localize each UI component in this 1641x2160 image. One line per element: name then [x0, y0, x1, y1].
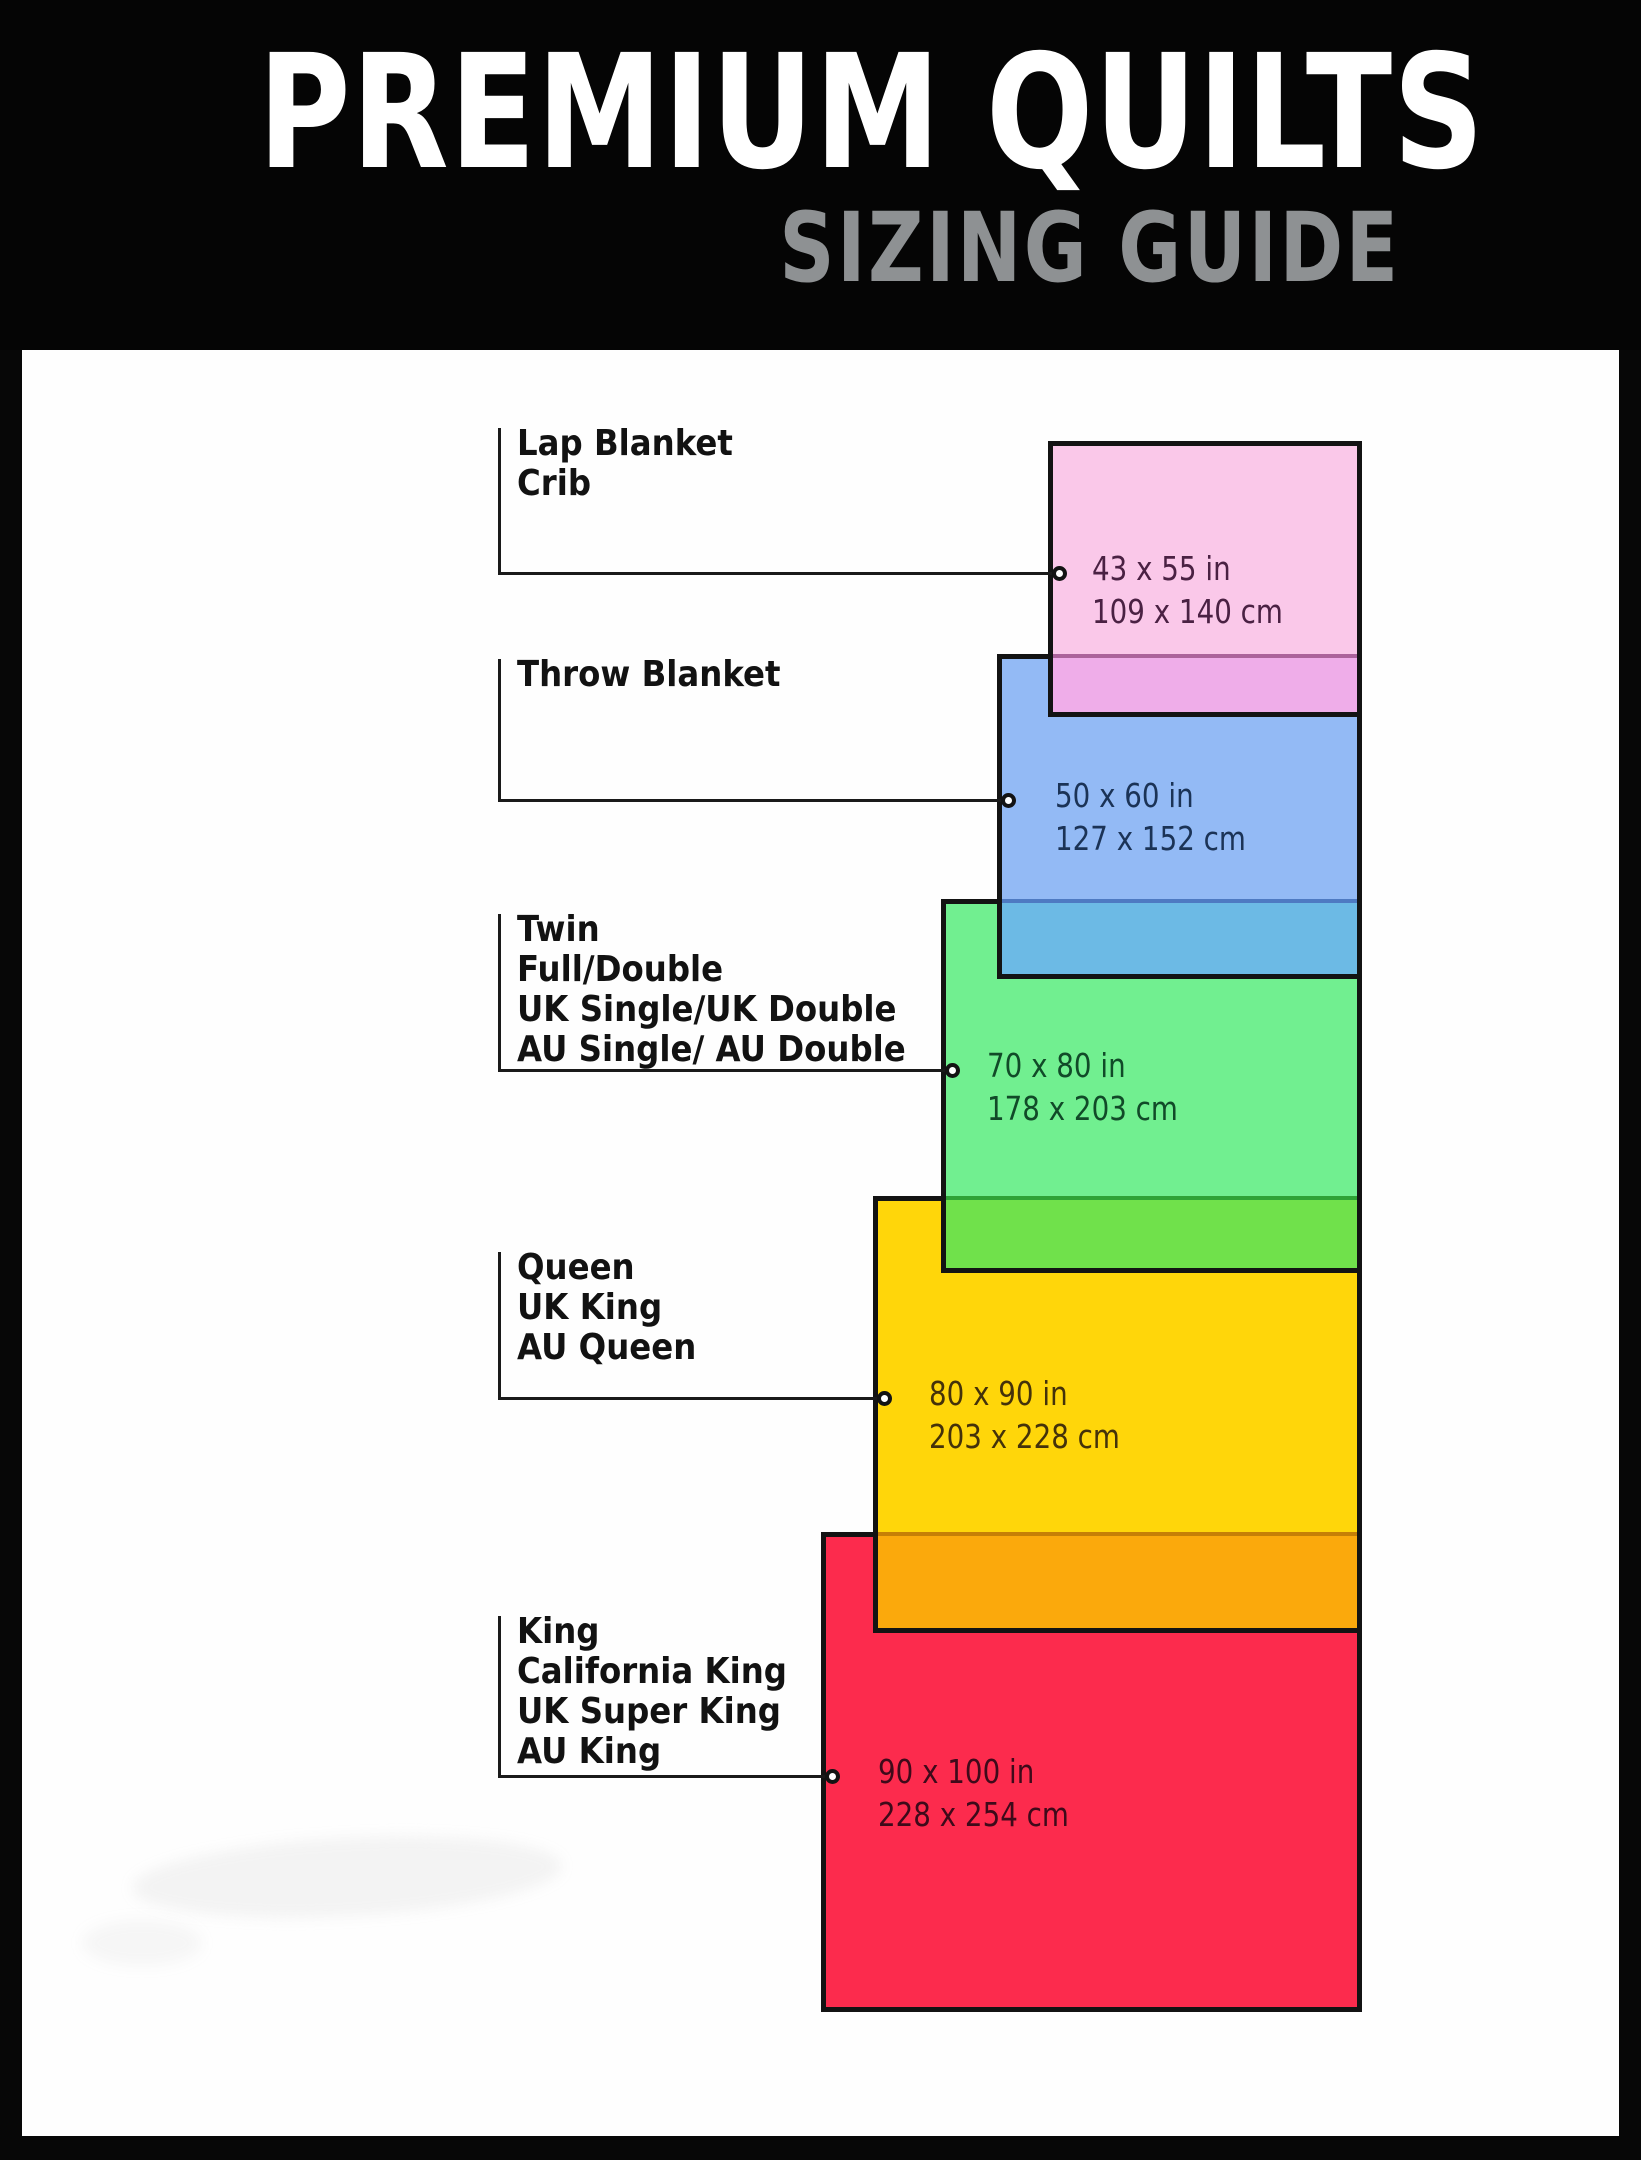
dimensions-cm: 203 x 228 cm: [929, 1415, 1120, 1458]
marker-circle-throw: [1001, 793, 1016, 808]
size-label-king: KingCalifornia KingUK Super KingAU King: [517, 1612, 787, 1772]
dimensions-lap-crib: 43 x 55 in109 x 140 cm: [1092, 547, 1283, 633]
size-label-line: Twin: [517, 910, 906, 950]
dimensions-queen: 80 x 90 in203 x 228 cm: [929, 1372, 1120, 1458]
marker-circle-twin-full: [945, 1063, 960, 1078]
overlap-band-twin-full: [946, 1196, 1357, 1268]
size-label-line: Queen: [517, 1248, 696, 1288]
size-label-lap-crib: Lap BlanketCrib: [517, 424, 733, 504]
stage: Lap BlanketCrib43 x 55 in109 x 140 cmThr…: [0, 0, 1641, 2160]
dimensions-inches: 70 x 80 in: [987, 1044, 1178, 1087]
dimensions-cm: 127 x 152 cm: [1055, 817, 1246, 860]
infographic-page: { "header": { "title": "PREMIUM QUILTS",…: [0, 0, 1641, 2160]
bracket-line-queen: [498, 1252, 501, 1400]
size-label-line: California King: [517, 1652, 787, 1692]
marker-circle-lap-crib: [1052, 566, 1067, 581]
size-label-line: UK Single/UK Double: [517, 990, 906, 1030]
dimensions-inches: 90 x 100 in: [878, 1750, 1069, 1793]
size-label-line: Lap Blanket: [517, 424, 733, 464]
size-label-line: UK King: [517, 1288, 696, 1328]
size-label-twin-full: TwinFull/DoubleUK Single/UK DoubleAU Sin…: [517, 910, 906, 1070]
size-label-line: AU Single/ AU Double: [517, 1030, 906, 1070]
marker-circle-queen: [877, 1391, 892, 1406]
overlap-band-throw: [1002, 899, 1357, 974]
size-label-line: Throw Blanket: [517, 655, 780, 695]
bracket-line-twin-full: [498, 914, 501, 1072]
leader-line-king: [498, 1775, 832, 1778]
leader-line-throw: [498, 799, 1008, 802]
dimensions-cm: 109 x 140 cm: [1092, 590, 1283, 633]
size-label-line: AU Queen: [517, 1328, 696, 1368]
dimensions-inches: 50 x 60 in: [1055, 774, 1246, 817]
bracket-line-throw: [498, 659, 501, 802]
bracket-line-lap-crib: [498, 428, 501, 575]
size-label-queen: QueenUK KingAU Queen: [517, 1248, 696, 1368]
size-label-line: King: [517, 1612, 787, 1652]
size-label-line: AU King: [517, 1732, 787, 1772]
dimensions-inches: 43 x 55 in: [1092, 547, 1283, 590]
size-label-line: Crib: [517, 464, 733, 504]
dimensions-inches: 80 x 90 in: [929, 1372, 1120, 1415]
dimensions-throw: 50 x 60 in127 x 152 cm: [1055, 774, 1246, 860]
dimensions-king: 90 x 100 in228 x 254 cm: [878, 1750, 1069, 1836]
size-label-line: Full/Double: [517, 950, 906, 990]
overlap-band-lap-crib: [1053, 654, 1357, 712]
size-label-throw: Throw Blanket: [517, 655, 780, 695]
dimensions-cm: 178 x 203 cm: [987, 1087, 1178, 1130]
leader-line-lap-crib: [498, 572, 1059, 575]
size-label-line: UK Super King: [517, 1692, 787, 1732]
dimensions-twin-full: 70 x 80 in178 x 203 cm: [987, 1044, 1178, 1130]
marker-circle-king: [825, 1769, 840, 1784]
leader-line-queen: [498, 1397, 884, 1400]
bracket-line-king: [498, 1616, 501, 1778]
overlap-band-queen: [878, 1532, 1357, 1628]
dimensions-cm: 228 x 254 cm: [878, 1793, 1069, 1836]
leader-line-twin-full: [498, 1069, 952, 1072]
